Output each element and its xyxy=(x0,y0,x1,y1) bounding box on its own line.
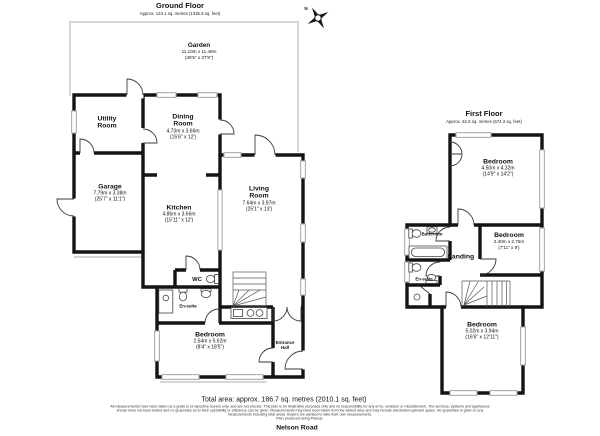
compass-north-label: N xyxy=(304,0,307,15)
room-label-bedroom-middle: Bedroom 2.40m x 2.75m (7'11" x 9') xyxy=(494,232,524,250)
floor-plan-drawing xyxy=(0,0,600,436)
first-floor-title: First Floor xyxy=(446,110,522,119)
ground-floor-header: Ground Floor Approx. 124.1 sq. metres (1… xyxy=(140,2,221,16)
disclaimer-line-2: shown have not been tested and no guaran… xyxy=(110,410,489,412)
room-label-bedroom-back: Bedroom 5.02m x 3.94m (16'6" x 12'11") xyxy=(465,321,498,340)
room-label-entrance-hall: Entrance Hall xyxy=(274,340,296,350)
room-label-wc: WC xyxy=(192,277,202,283)
disclaimer-line-1: All measurements have been taken as a gu… xyxy=(110,406,489,408)
floorplan-page: Ground Floor Approx. 124.1 sq. metres (1… xyxy=(0,0,600,436)
room-label-garden: Garden 11.10m x 11.49m (36'5" x 37'8") xyxy=(182,42,217,60)
room-label-landing: Landing xyxy=(448,254,474,261)
room-label-kitchen: Kitchen 4.86m x 3.66m (15'11" x 12') xyxy=(162,204,195,223)
room-label-ensuite-ground: En-suite xyxy=(179,303,196,308)
room-label-garage: Garage 7.79m x 3.38m (25'7" x 11'1") xyxy=(93,183,126,202)
room-label-ensuite-first: En-suite xyxy=(415,276,432,281)
room-label-bathroom: Bathroom xyxy=(422,231,443,236)
total-area-text: Total area: approx. 186.7 sq. metres (20… xyxy=(202,397,367,404)
room-label-living: Living Room 7.64m x 3.97m (25'1" x 13') xyxy=(242,186,275,213)
disclaimer-line-4: Plan produced using PlanUp. xyxy=(110,418,489,420)
room-label-dining: Dining Room 4.73m x 3.66m (15'6" x 12') xyxy=(166,114,199,141)
room-label-bedroom-front: Bedroom 4.50m x 4.32m (14'9" x 14'2") xyxy=(481,158,514,177)
first-floor-header: First Floor Approx. 62.6 sq. metres (674… xyxy=(446,110,522,124)
address-title: Nelson Road xyxy=(276,425,318,432)
ground-floor-area: Approx. 124.1 sq. metres (1335.9 sq. fee… xyxy=(140,11,221,17)
room-label-bedroom-ground: Bedroom 2.54m x 5.62m (8'4" x 18'5") xyxy=(193,331,226,350)
room-label-utility: Utility Room xyxy=(92,116,122,131)
ground-floor-title: Ground Floor xyxy=(140,2,221,11)
first-floor-area: Approx. 62.6 sq. metres (674.3 sq. feet) xyxy=(446,119,522,125)
disclaimer-line-3: measurements including total areas. Buye… xyxy=(110,414,489,416)
disclaimer-text: All measurements have been taken as a gu… xyxy=(0,405,600,421)
